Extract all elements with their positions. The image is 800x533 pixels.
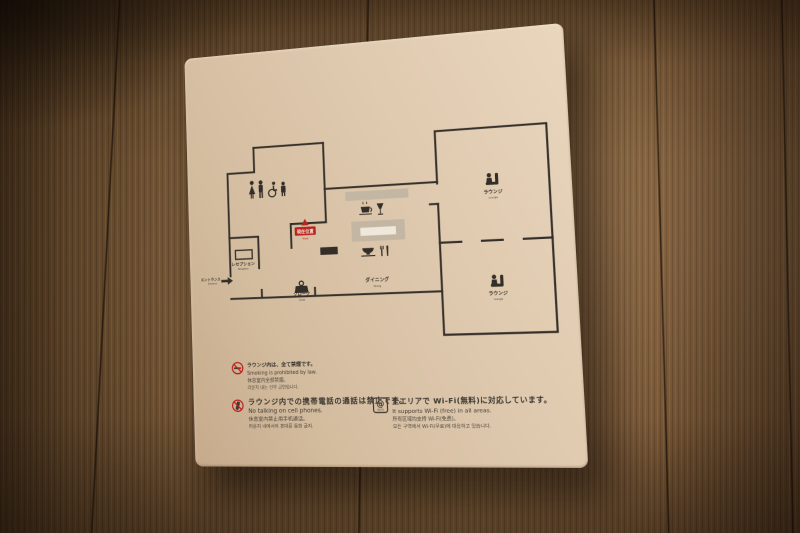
lounge-upper-label-en: Lounge	[489, 196, 499, 200]
room-restrooms	[249, 179, 286, 199]
wifi-zh: 所有区域均支持 Wi-Fi(免费)。	[392, 415, 458, 423]
lounge-lower: ラウンジ Lounge	[488, 274, 509, 301]
wine-glass-icon	[377, 203, 384, 215]
lounge-lower-label-ja: ラウンジ	[488, 289, 508, 297]
wifi-ko: 모든 구역에서 Wi-Fi(무료)에 대응하고 있습니다.	[393, 422, 492, 430]
no-phone-zh: 休息室内禁止用手机通话。	[248, 415, 308, 423]
entrance-label-en: Entrance	[208, 282, 218, 285]
current-location-marker: 現在位置 Here	[294, 218, 316, 240]
floor-plan: レセプション Reception エントランス Entrance 現在位置 He…	[197, 123, 558, 341]
wifi-icon-symbol: @	[376, 399, 385, 409]
sign-face: レセプション Reception エントランス Entrance 現在位置 He…	[184, 23, 588, 468]
baby-icon	[281, 182, 286, 197]
no-smoking-ja: ラウンジ内は、全て禁煙です。	[247, 360, 316, 369]
counter	[345, 188, 408, 201]
wall	[253, 143, 323, 148]
lounge-floor-map-sign: レセプション Reception エントランス Entrance 現在位置 He…	[184, 23, 588, 468]
dining-area: ダイニング Dining	[345, 188, 412, 289]
reception-desk	[235, 250, 252, 260]
no-smoking-zh: 休息室内全部禁烟。	[247, 376, 288, 384]
lounge-upper: ラウンジ Lounge	[483, 172, 504, 200]
entrance-label-ja: エントランス	[201, 276, 221, 282]
wood-plank-seam	[780, 0, 795, 533]
reception-label-en: Reception	[238, 268, 249, 272]
dining-label-en: Dining	[374, 285, 382, 288]
fork-knife-icon	[380, 246, 389, 257]
no-phone-ko: 라운지 내에서의 휴대폰 통화 금지.	[249, 422, 314, 430]
wood-plank-seam	[89, 0, 122, 533]
photo-scene: レセプション Reception エントランス Entrance 現在位置 He…	[0, 0, 800, 533]
current-location-triangle-icon	[301, 219, 308, 226]
lounge-upper-label-ja: ラウンジ	[483, 187, 503, 196]
bench	[320, 247, 338, 255]
current-location-label-en: Here	[302, 236, 308, 240]
cloak-label-en: Cloak	[299, 299, 306, 302]
lounge-chair-icon	[490, 274, 503, 287]
wood-plank-seam	[652, 0, 671, 533]
wall	[440, 237, 553, 242]
dining-label-ja: ダイニング	[365, 276, 389, 284]
wifi-notice: @ Wi-Fi 全エリアで Wi-Fi(無料)に対応しています。 It supp…	[373, 395, 553, 431]
no-smoking-icon	[232, 363, 243, 374]
entrance-marker: エントランス Entrance	[201, 276, 233, 287]
reception-area: レセプション Reception	[231, 250, 255, 272]
man-icon	[258, 180, 263, 198]
no-phone-icon	[232, 400, 243, 411]
woman-icon	[249, 181, 256, 199]
lounge-chair-icon	[485, 173, 498, 186]
cloak-area: クローク Cloak	[293, 281, 311, 302]
no-smoking-notice: ラウンジ内は、全て禁煙です。 Smoking is prohibited by …	[232, 360, 318, 391]
notices: ラウンジ内は、全て禁煙です。 Smoking is prohibited by …	[231, 355, 553, 431]
no-smoking-en: Smoking is prohibited by law.	[247, 369, 317, 377]
entrance-arrow-icon	[221, 277, 233, 285]
lounge-lower-label-en: Lounge	[494, 298, 504, 302]
coffee-cup-icon	[359, 201, 372, 215]
no-phone-en: No talking on cell phones.	[248, 408, 323, 415]
wifi-en: It supports Wi-Fi (free) in all areas.	[392, 408, 492, 415]
no-smoking-ko: 라운지 내는 전부 금연입니다.	[247, 383, 299, 391]
wall	[231, 283, 442, 299]
bowl-icon	[361, 248, 376, 257]
wifi-icon-label: Wi-Fi	[377, 408, 384, 412]
reception-label-ja: レセプション	[231, 260, 255, 267]
wifi-ja: 全エリアで Wi-Fi(無料)に対応しています。	[391, 395, 552, 407]
wheelchair-icon	[268, 181, 277, 197]
